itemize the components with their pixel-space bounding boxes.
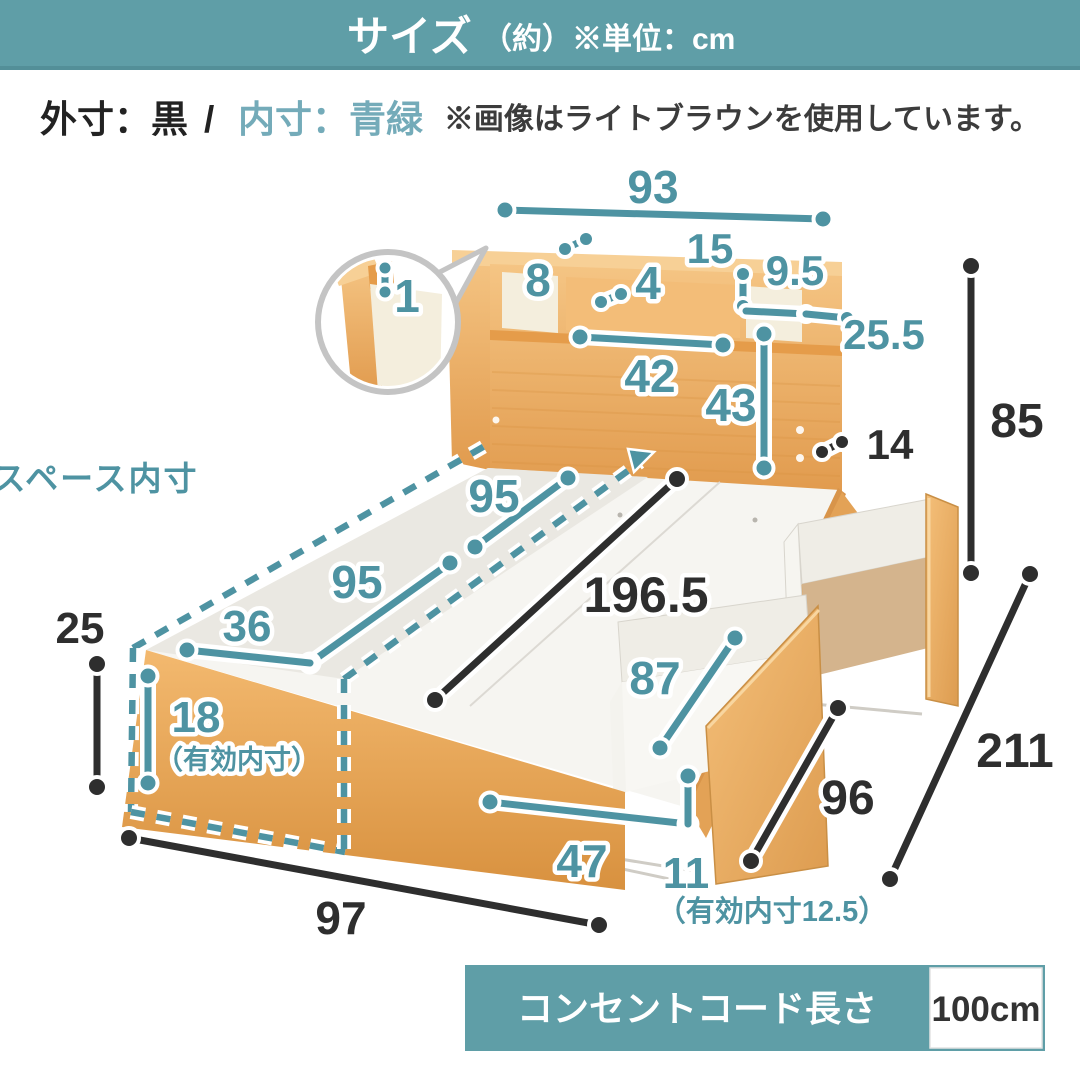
image-color-note: ※画像はライトブラウンを使用しています。 xyxy=(444,102,1040,136)
banner-unit-note: （約）※単位：cm xyxy=(482,22,735,56)
headboard-hole-dot xyxy=(796,454,804,462)
dim-label-11-note: （有効内寸12.5） xyxy=(657,894,887,928)
dim-label-93: 93 xyxy=(627,161,678,213)
headboard-hole-dot xyxy=(796,426,804,434)
dim-label-18: 18 xyxy=(172,693,221,742)
headboard-hole-dot xyxy=(493,417,500,424)
dim-label-47: 47 xyxy=(556,835,607,887)
dim-label-15: 15 xyxy=(687,225,734,272)
dim-label-1: 1 xyxy=(394,270,420,322)
dim-label-95-upper: 95 xyxy=(468,470,519,522)
banner-bottom-edge xyxy=(0,66,1080,70)
dim-label-8: 8 xyxy=(525,254,551,306)
dim-85: 85 xyxy=(961,256,1044,583)
dashed-left-vertical xyxy=(131,648,133,812)
dim-label-25: 25 xyxy=(56,604,105,653)
spec-value: 100cm xyxy=(932,990,1041,1029)
dim-label-9-5: 9.5 xyxy=(766,247,824,294)
dim-25: 25 xyxy=(56,604,107,797)
dim-label-42: 42 xyxy=(624,350,675,402)
dim-label-36: 36 xyxy=(223,602,272,651)
banner-title: サイズ xyxy=(347,13,472,60)
bed-dimension-diagram: サイズ （約）※単位：cm 外寸：黒 / 内寸：青緑 ※画像はライトブラウンを使… xyxy=(0,0,1080,1080)
spec-box: コンセントコード長さ 100cm xyxy=(465,965,1045,1051)
dim-label-96: 96 xyxy=(821,772,874,825)
legend-inner-label: 内寸：青緑 xyxy=(238,99,424,140)
dim-label-196-5: 196.5 xyxy=(583,567,708,623)
dim-label-87: 87 xyxy=(629,652,680,704)
dim-label-4: 4 xyxy=(635,257,661,309)
title-banner: サイズ （約）※単位：cm xyxy=(0,0,1080,70)
legend-separator: / xyxy=(204,99,214,140)
dim-label-11: 11 xyxy=(663,849,710,898)
dim-label-85: 85 xyxy=(990,395,1043,448)
dim-label-25-5: 25.5 xyxy=(843,311,925,358)
dim-label-14: 14 xyxy=(867,421,914,468)
dim-93: 93 xyxy=(496,161,833,229)
dim-label-97: 97 xyxy=(315,892,366,944)
upper-drawer-front-panel xyxy=(926,494,958,706)
dim-label-211: 211 xyxy=(976,725,1053,778)
dim-label-18-note: （有効内寸） xyxy=(156,744,318,775)
size-diagram-page: サイズ （約）※単位：cm 外寸：黒 / 内寸：青緑 ※画像はライトブラウンを使… xyxy=(0,0,1080,1080)
dim-label-95-lower: 95 xyxy=(331,556,382,608)
spec-label: コンセントコード長さ xyxy=(517,988,877,1029)
legend-outer-label: 外寸：黒 xyxy=(40,99,188,140)
legend-row: 外寸：黒 / 内寸：青緑 ※画像はライトブラウンを使用しています。 xyxy=(40,99,1040,140)
underfloor-space-label: 床板下スペース内寸 xyxy=(0,460,199,497)
dim-label-43: 43 xyxy=(705,379,756,431)
